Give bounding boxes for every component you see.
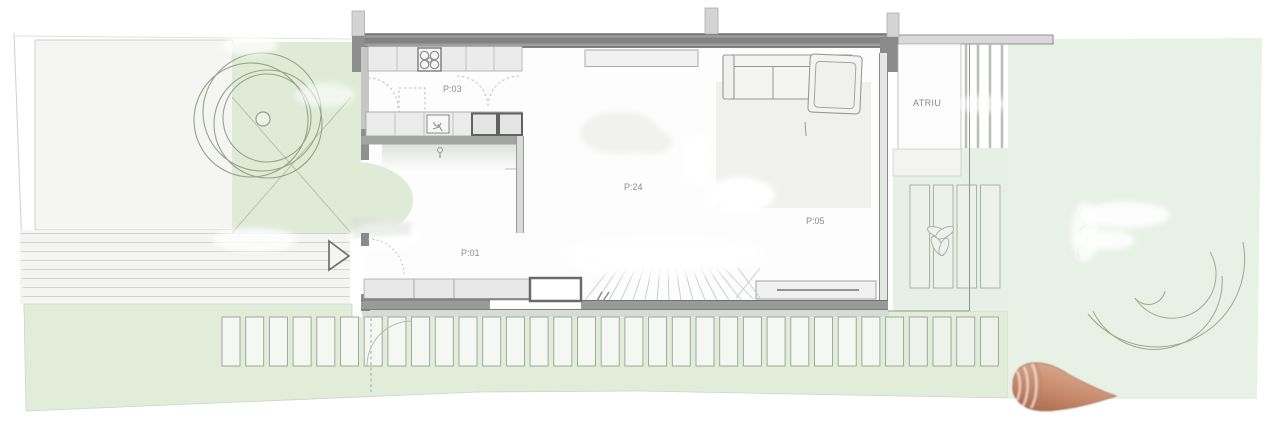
svg-text:P:05: P:05 <box>806 216 825 226</box>
svg-text:P:24: P:24 <box>624 182 643 192</box>
svg-text:P:03: P:03 <box>443 84 462 94</box>
svg-text:P:01: P:01 <box>461 248 480 258</box>
svg-text:ATRIU: ATRIU <box>913 98 941 108</box>
